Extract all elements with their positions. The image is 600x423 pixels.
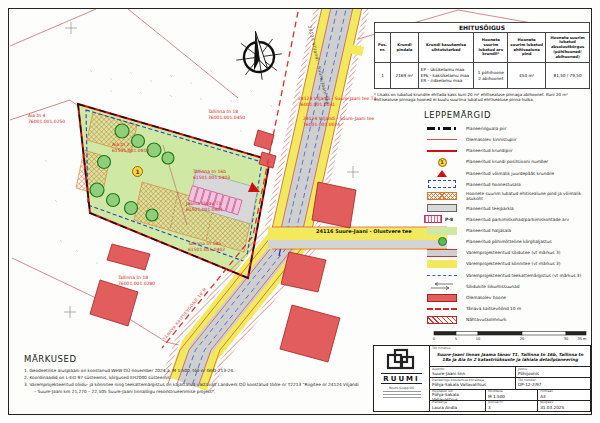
sihtotstarbed: EP - üksikelamu maa EPk - kaksikelamu ma… bbox=[418, 63, 474, 89]
tree-swatch bbox=[424, 237, 460, 246]
visibility-triangle-swatch bbox=[424, 316, 460, 325]
legend-item: Planeeritud võimalik juurdepääs krundile bbox=[424, 169, 590, 178]
scale-bar: 0 5 10 20 30 35 m bbox=[432, 330, 588, 343]
existing-building-swatch bbox=[424, 293, 460, 302]
title-block-fields: Töö nimetus: Suure-Jaani linnas Jaama tä… bbox=[430, 346, 590, 411]
too-number-cell: Töö number: DP-12-2/97 bbox=[516, 378, 590, 388]
legend-item: Olemasolev kinnistupiir bbox=[424, 135, 590, 144]
map-label: 24124 Viljandi - Suure-Jaani tee 76001.0… bbox=[303, 116, 374, 128]
svg-text:20: 20 bbox=[520, 337, 525, 341]
planeerija-cell: Planeerija: Laura Andla bbox=[430, 401, 486, 411]
olustvere-road-label: 24116 Suure-Jaani - Olustvere tee bbox=[316, 228, 412, 234]
map-label: Tallinna tn 18a 61501.001.0402 bbox=[188, 241, 225, 253]
legend-item: Planeeritud põhimõtteline kõrghaljastus bbox=[424, 237, 590, 246]
legend-item: Varemprojekteeritud sõidutee (vt märkus … bbox=[424, 248, 590, 257]
arv-line: 2 abihoonet bbox=[476, 76, 505, 82]
legend-item: Varemprojekteeritud kõnnitee (vt märkus … bbox=[424, 260, 590, 269]
parcel-name: 24124 Viljandi - Suure-Jaani tee bbox=[303, 116, 374, 122]
kuupaev-cell: Kuupäev: 31.03.2025 bbox=[538, 401, 590, 411]
map-label: Tallinna tn 18 76001.001.0280 bbox=[118, 275, 155, 287]
legend-item: Sõidukite liikumissuunad bbox=[424, 282, 590, 291]
green-area-swatch bbox=[424, 226, 460, 235]
map-label: Aia tn 2 61501.001.0810 bbox=[112, 142, 149, 154]
note: 3. Varemprojekteeritud sõidu- ja kõnnite… bbox=[24, 382, 362, 394]
legend-item: Planeeritud haljasala bbox=[424, 226, 590, 235]
sidewalk-swatch bbox=[424, 260, 460, 269]
huvitatud-isik-cell: Huvitatud isik: Põhja-Sakala Vallavalits… bbox=[430, 390, 486, 400]
map-label: Aia tn 4 76001.001.0250 bbox=[28, 113, 65, 125]
table-title: EHITUSÕIGUS bbox=[375, 23, 590, 33]
logo-text: RUUMI bbox=[381, 373, 421, 384]
asukoht-cell: Asukoht: Suure-Jaani linn bbox=[430, 367, 516, 377]
north-compass-icon bbox=[233, 28, 285, 83]
joonis-cell: Joonis: Põhijoonis bbox=[516, 367, 590, 377]
cadastral-code: 76001.001.0280 bbox=[118, 281, 155, 287]
project-title-cell: Töö nimetus: Suure-Jaani linnas Jaama tä… bbox=[430, 346, 590, 367]
cadastral-code: 76001.001.0024 bbox=[303, 122, 374, 128]
ruumi-logo-icon bbox=[385, 348, 419, 372]
svg-text:10: 10 bbox=[476, 337, 481, 341]
sihtotstarve: EP - üksikelamu maa bbox=[421, 67, 472, 73]
pindala: 2169 m² bbox=[390, 63, 418, 89]
road-parking-swatch bbox=[424, 204, 460, 213]
notes-title: MÄRKUSED bbox=[24, 354, 362, 364]
parcel-name: Jaama tänav T1 bbox=[186, 201, 223, 207]
legend-item: Nähtavuskolmnurk bbox=[424, 316, 590, 325]
svg-text:35 m: 35 m bbox=[577, 337, 587, 341]
access-swatch bbox=[424, 169, 460, 178]
table-row: 1 2169 m² EP - üksikelamu maa EPk - kaks… bbox=[375, 63, 590, 89]
legend-item: Hoonete suurim lubatud ehitisealune pind… bbox=[424, 191, 590, 201]
table-footnote: * Lisaks on lubatud krundile ehitada kak… bbox=[374, 92, 590, 103]
title-block: RUUMI Ruumi Grupp OÜ Töö nimetus: Suure-… bbox=[373, 345, 591, 412]
col-header: Krundi kasutamise sihtotstarbed bbox=[418, 33, 474, 63]
address-line bbox=[383, 391, 421, 392]
map-label: 24124 Viljandi - Suure-Jaani tee T4 7600… bbox=[298, 96, 376, 108]
legend-item: Planeeritud hoonestusala bbox=[424, 180, 590, 189]
legend-item: P-8 Planeeritud parkimiskohad/parkimisko… bbox=[424, 215, 590, 224]
note: 1. Geodeetilise alusplaani on koostanud … bbox=[24, 368, 362, 374]
address-line bbox=[383, 397, 421, 398]
svg-text:5: 5 bbox=[455, 337, 457, 341]
position-number-swatch: 1 bbox=[424, 158, 460, 167]
cadastral-code: 76001.001.0250 bbox=[28, 119, 65, 125]
parcel-name: Tallinna tn 16b bbox=[193, 169, 230, 175]
cadastral-code: 61501.001.0801 bbox=[186, 207, 223, 213]
legend: LEPPEMÄRGID Planeeringuala piir Olemasol… bbox=[424, 110, 590, 327]
parcel-name: 24124 Viljandi - Suure-Jaani tee T4 bbox=[298, 96, 376, 102]
cadastral-code: 61501.001.0402 bbox=[188, 247, 225, 253]
detail-plan-sheet: Aia tn 4 76001.001.0250 Aia tn 2 61501.0… bbox=[0, 0, 600, 423]
traffic-direction-swatch bbox=[424, 282, 460, 291]
absoluutkorgus: 81,50 / 79,50 bbox=[546, 63, 590, 89]
joonise-nr-cell: Joonise nr: 3 bbox=[486, 401, 538, 411]
carriageway-swatch bbox=[424, 248, 460, 257]
planned-boundary-swatch bbox=[424, 146, 460, 155]
legend-item: 1 Planeeritud krundi positsiooni number bbox=[424, 158, 590, 167]
legend-title: LEPPEMÄRGID bbox=[424, 110, 590, 120]
cadastral-code: 76001.001.0450 bbox=[208, 115, 245, 121]
road-marking-swatch bbox=[424, 271, 460, 280]
map-label: Tallinna tn 16b 61501.001.0403 bbox=[193, 169, 230, 181]
legend-item: Varemprojekteeritud teekattemärgistus (v… bbox=[424, 271, 590, 280]
legend-item: Planeeringuala piir bbox=[424, 124, 590, 133]
cadastral-code: 61501.001.0810 bbox=[112, 148, 149, 154]
legend-item: Olemasolev hoone bbox=[424, 293, 590, 302]
cadastral-code: 61501.001.0403 bbox=[193, 175, 230, 181]
korraldaja-cell: Planeeringu koostamise korraldaja: Põhja… bbox=[430, 378, 516, 388]
parking-count-swatch: P-8 bbox=[424, 215, 460, 224]
svg-text:30: 30 bbox=[564, 337, 569, 341]
legend-item: Planeeritud krundipiir bbox=[424, 146, 590, 155]
col-header: Hoonete suurim lubatud absoluutkõrgus (p… bbox=[546, 33, 590, 63]
note: 2. Koordinaadid on L-Est 97 süsteemis, k… bbox=[24, 375, 362, 381]
plot-position-number: 1 bbox=[132, 166, 143, 177]
field-label: Töö nimetus: bbox=[432, 347, 451, 350]
sihtotstarve: ER - ridaelamu maa bbox=[421, 78, 472, 84]
mootkava-cell: Mõõtkava: M 1:500 bbox=[486, 390, 538, 400]
col-header: Hoonete suurim lubatud ehitisealune pind bbox=[508, 33, 546, 63]
cadastral-code: 76001.001.0031 bbox=[298, 102, 376, 108]
ehitusoigus-table: EHITUSÕIGUS Pos. nr. Krundi pindala Krun… bbox=[374, 22, 590, 89]
legend-item: Tänava kaitsevöönd 10 m bbox=[424, 304, 590, 313]
arv-line: 1 põhihoone bbox=[476, 70, 505, 76]
notes-section: MÄRKUSED 1. Geodeetilise alusplaani on k… bbox=[24, 354, 362, 396]
svg-text:0: 0 bbox=[433, 337, 436, 341]
pos-nr: 1 bbox=[375, 63, 391, 89]
map-label: Jaama tänav T1 61501.001.0801 bbox=[186, 201, 223, 213]
project-title: Suure-Jaani linnas Jaama tänav T1, Talli… bbox=[433, 352, 587, 363]
hoonete-arv: 1 põhihoone 2 abihoonet bbox=[474, 63, 508, 89]
parcel-name: Tallinna tn 18a bbox=[188, 241, 225, 247]
company-name: Ruumi Grupp OÜ bbox=[389, 386, 414, 390]
col-header: Pos. nr. bbox=[375, 33, 391, 63]
formaat-cell: Formaat: A3 bbox=[538, 390, 590, 400]
existing-boundary-swatch bbox=[424, 135, 460, 144]
ehitisealune-pind: 450 m² bbox=[508, 63, 546, 89]
col-header: Hoonete suurim lubatud arv krundil* bbox=[474, 33, 508, 63]
protection-zone-swatch bbox=[424, 304, 460, 313]
map-label: Tallinna tn 18 76001.001.0450 bbox=[208, 109, 245, 121]
address-line bbox=[383, 394, 421, 395]
company-logo: RUUMI Ruumi Grupp OÜ bbox=[374, 346, 430, 411]
col-header: Krundi pindala bbox=[390, 33, 418, 63]
footprint-swatch bbox=[424, 192, 460, 201]
hoonestusala-swatch bbox=[424, 180, 460, 189]
legend-item: Planeeritud tee/parkla bbox=[424, 204, 590, 213]
planning-boundary-swatch bbox=[424, 124, 460, 133]
